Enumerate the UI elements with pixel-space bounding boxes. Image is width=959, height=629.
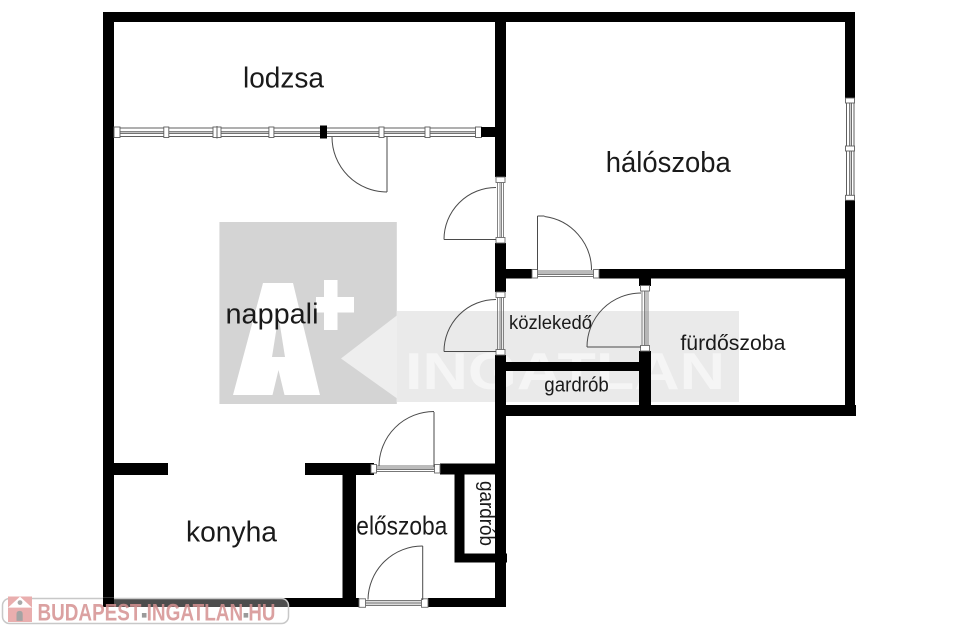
svg-text:hálószoba: hálószoba: [606, 147, 732, 179]
svg-text:közlekedő: közlekedő: [509, 312, 592, 334]
svg-text:HU: HU: [248, 599, 275, 626]
svg-text:gardrób: gardrób: [544, 374, 609, 397]
svg-text:gardrób: gardrób: [475, 481, 497, 546]
svg-text:BUDAPEST: BUDAPEST: [38, 599, 142, 626]
svg-text:lodzsa: lodzsa: [243, 62, 325, 94]
svg-text:konyha: konyha: [186, 516, 278, 548]
svg-text:előszoba: előszoba: [356, 510, 447, 540]
svg-text:INGATLAN: INGATLAN: [147, 599, 244, 626]
svg-text:fürdőszoba: fürdőszoba: [680, 330, 786, 355]
svg-text:nappali: nappali: [226, 298, 319, 330]
